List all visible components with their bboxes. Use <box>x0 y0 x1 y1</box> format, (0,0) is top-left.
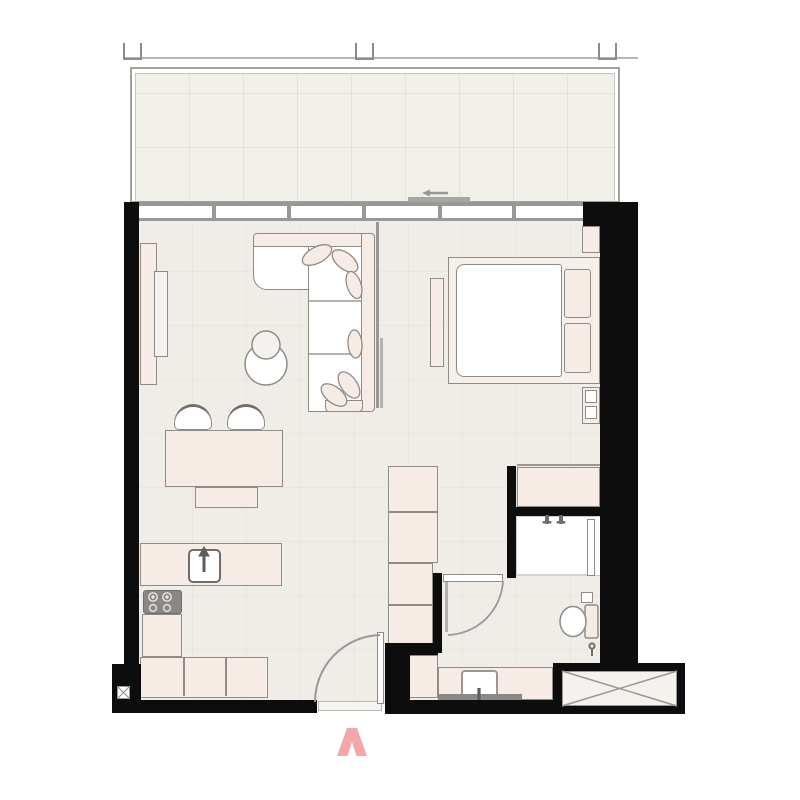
facade-bracket-right <box>598 43 617 60</box>
window-end-block-right <box>583 202 620 226</box>
hallway-wardrobe-unit <box>388 512 438 563</box>
nightstand-drawer <box>585 406 597 419</box>
shower-threshold <box>516 574 587 576</box>
nightstand-drawer <box>585 390 597 403</box>
nightstand-bottom <box>582 387 600 424</box>
sofa-back-top <box>253 233 375 247</box>
facade-bracket-middle <box>355 43 374 60</box>
window-mullion <box>362 205 366 219</box>
window-mullion <box>212 205 216 219</box>
sofa-seat-divider <box>309 300 361 302</box>
vanity-side-cabinet <box>410 655 438 698</box>
glass-partition <box>376 222 379 408</box>
wall-shower-top <box>515 507 602 516</box>
balcony-floor <box>136 74 614 201</box>
entrance-arrow-icon <box>337 728 367 756</box>
wall-shower-left <box>507 466 516 578</box>
window-mullion <box>438 205 442 219</box>
wall-bottom-left <box>112 700 317 713</box>
sofa-seat-divider <box>309 353 361 355</box>
bathroom-door-jamb <box>445 582 448 632</box>
cabinet-divider <box>225 658 227 696</box>
entry-door-leaf <box>377 632 384 704</box>
nightstand-top <box>582 226 600 253</box>
wardrobe-front-line <box>517 464 600 466</box>
bathroom-door-leaf <box>443 574 503 582</box>
dining-bench <box>195 487 258 508</box>
entry-threshold <box>318 701 382 711</box>
window-frame-inner <box>139 218 583 221</box>
wall-duct-box <box>117 686 130 699</box>
bed-pillow <box>564 323 591 373</box>
sofa-armrest-bottom <box>325 400 363 412</box>
window-panes <box>139 206 583 218</box>
kitchen-cabinet-bottom <box>140 657 268 698</box>
bedroom-wardrobe <box>517 467 600 507</box>
cooktop <box>143 590 182 614</box>
wall-bottom-middle <box>385 700 562 714</box>
window-end-block-left <box>124 202 139 224</box>
wall-left <box>124 202 139 664</box>
wall-bathroom-left <box>433 573 442 653</box>
hallway-wardrobe-unit <box>388 466 438 512</box>
sofa-seats <box>308 246 362 412</box>
sofa-back-right <box>361 233 375 412</box>
facade-bracket-left <box>123 43 142 60</box>
dining-table <box>165 430 283 487</box>
vanity-front-edge <box>438 694 522 699</box>
plot-boundary-line <box>123 57 638 59</box>
service-shaft <box>562 671 677 706</box>
cabinet-divider <box>183 658 185 696</box>
kitchen-cabinet-left <box>142 614 182 657</box>
shower-glass-panel <box>587 519 595 576</box>
sofa-chaise-seat <box>253 246 310 290</box>
wall-right <box>600 202 638 668</box>
floor-plan <box>0 0 800 800</box>
window-mullion <box>287 205 291 219</box>
tv-screen <box>154 271 168 357</box>
bedroom-dresser <box>430 278 444 367</box>
kitchen-sink <box>188 549 221 583</box>
partition-sliding-pane <box>380 338 383 408</box>
hallway-wardrobe-unit <box>388 605 433 645</box>
bed-pillow <box>564 269 591 318</box>
toilet-roll-holder <box>581 592 593 603</box>
hallway-wardrobe-unit <box>388 563 433 605</box>
window-mullion <box>512 205 516 219</box>
bed-mattress <box>456 264 562 377</box>
wall-foyer-block <box>385 643 410 713</box>
